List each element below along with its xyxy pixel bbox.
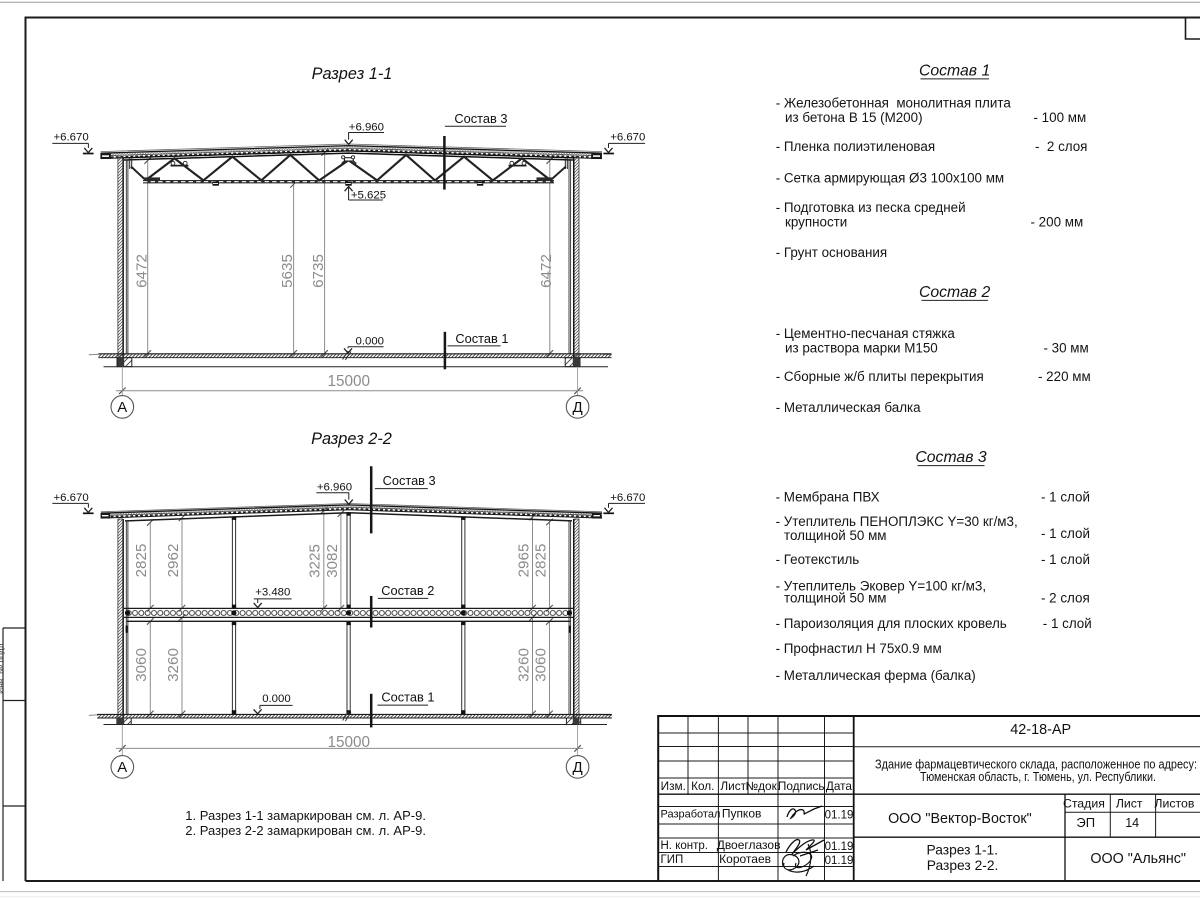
svg-text:01.19: 01.19 [825,855,854,867]
svg-text:- Геотекстиль: - Геотекстиль [776,552,860,567]
svg-text:Лист: Лист [720,779,746,793]
svg-text:- 2 слоя: - 2 слоя [1035,139,1087,154]
svg-text:0.000: 0.000 [356,336,385,348]
svg-text:крупности: крупности [785,215,847,230]
svg-text:Разрез 1-1: Разрез 1-1 [312,65,393,83]
svg-text:15000: 15000 [328,734,371,751]
svg-text:№док.: №док. [746,779,781,793]
svg-text:14: 14 [1125,816,1139,830]
svg-text:+6.960: +6.960 [317,481,352,493]
svg-text:- Металлическая ферма (балка): - Металлическая ферма (балка) [776,668,976,683]
svg-text:+6.960: +6.960 [349,121,384,133]
svg-text:- 1 слой: - 1 слой [1041,526,1090,541]
svg-text:Д: Д [573,399,583,416]
svg-text:- Пленка полиэтиленовая: - Пленка полиэтиленовая [776,139,935,154]
svg-text:Состав 2: Состав 2 [381,583,434,598]
svg-text:Разрез 2-2: Разрез 2-2 [311,430,392,448]
svg-text:из раствора марки М150: из раствора марки М150 [785,340,938,355]
svg-text:ООО "Вектор-Восток": ООО "Вектор-Восток" [888,811,1032,827]
svg-text:ООО "Альянс": ООО "Альянс" [1090,851,1186,867]
svg-text:- 2 слоя: - 2 слоя [1041,590,1090,605]
svg-text:- Пароизоляция для плоских кро: - Пароизоляция для плоских кровель [776,616,1007,631]
svg-text:- 220 мм: - 220 мм [1038,369,1091,384]
svg-text:1. Разрез 1-1 замаркирован см.: 1. Разрез 1-1 замаркирован см. л. АР-9. [185,808,426,823]
svg-text:- Железобетонная монолитная п: - Железобетонная монолитная плита [776,96,1012,111]
svg-text:ГИП: ГИП [661,854,684,866]
svg-text:Д: Д [573,759,583,776]
svg-text:- Подготовка из песка средней: - Подготовка из песка средней [776,200,966,215]
svg-text:42-18-АР: 42-18-АР [1010,722,1071,738]
svg-text:+3.480: +3.480 [255,587,290,599]
svg-text:Состав 3: Состав 3 [915,449,986,466]
svg-text:из бетона В 15 (М200): из бетона В 15 (М200) [785,110,923,125]
svg-text:15000: 15000 [328,373,371,390]
svg-text:Состав 1: Состав 1 [455,331,508,346]
svg-text:Состав 2: Состав 2 [919,284,990,301]
svg-text:- Сетка армирующая Ø3 100х100: - Сетка армирующая Ø3 100х100 мм [776,170,1004,185]
svg-text:- Металлическая балка: - Металлическая балка [776,400,921,415]
svg-text:- 30 мм: - 30 мм [1044,340,1089,355]
svg-text:- Утеплитель ПЕНОПЛЭКС Y=30 кг: - Утеплитель ПЕНОПЛЭКС Y=30 кг/м3, [776,514,1018,529]
svg-text:- 200 мм: - 200 мм [1031,215,1084,230]
svg-text:- Сборные ж/б плиты перекрытия: - Сборные ж/б плиты перекрытия [776,369,984,384]
svg-text:+6.670: +6.670 [54,492,89,504]
svg-text:ЭП: ЭП [1076,815,1095,830]
svg-text:0.000: 0.000 [262,693,291,705]
svg-text:6735: 6735 [310,254,327,288]
svg-text:+6.670: +6.670 [54,132,89,144]
svg-text:- Цементно-песчаная стяжка: - Цементно-песчаная стяжка [776,326,956,341]
svg-text:Коротаев: Коротаев [719,852,771,866]
svg-text:- Профнастил Н 75х0.9 мм: - Профнастил Н 75х0.9 мм [776,641,942,656]
svg-text:2. Разрез 2-2 замаркирован см.: 2. Разрез 2-2 замаркирован см. л. АР-9. [185,823,426,838]
svg-text:- 100 мм: - 100 мм [1034,110,1087,125]
svg-text:- Мембрана ПВХ: - Мембрана ПВХ [776,490,880,505]
svg-text:Стадия: Стадия [1063,797,1105,811]
svg-text:Разрез 1-1.: Разрез 1-1. [927,842,999,857]
svg-text:2825: 2825 [532,544,549,578]
svg-text:- Грунт основания: - Грунт основания [776,245,887,260]
svg-text:А: А [117,399,127,416]
svg-text:А: А [117,759,127,776]
svg-text:Подпись: Подпись [778,779,825,793]
svg-text:Состав 1: Состав 1 [919,63,990,80]
svg-text:2962: 2962 [165,544,182,578]
svg-text:3060: 3060 [133,648,150,682]
svg-text:толщиной 50 мм: толщиной 50 мм [784,528,887,543]
svg-text:Листов: Листов [1154,797,1194,811]
svg-text:Разработал: Разработал [661,808,721,820]
svg-text:Дата: Дата [826,779,853,793]
svg-text:толщиной 50 мм: толщиной 50 мм [784,591,887,606]
svg-text:3225: 3225 [307,544,324,578]
svg-text:+6.670: +6.670 [610,132,645,144]
svg-text:Инв. № подл.: Инв. № подл. [0,641,6,694]
svg-text:01.19: 01.19 [825,841,854,853]
svg-text:6472: 6472 [133,254,150,288]
svg-text:- 1 слой: - 1 слой [1043,616,1092,631]
svg-text:- 1 слой: - 1 слой [1041,552,1090,567]
svg-text:Состав 3: Состав 3 [383,473,436,488]
svg-text:Кол.: Кол. [691,779,714,793]
svg-text:Н. контр.: Н. контр. [661,840,708,852]
svg-text:2825: 2825 [133,544,150,578]
svg-text:Разрез 2-2.: Разрез 2-2. [927,858,999,873]
svg-text:Тюменская область, г. Тюмень,: Тюменская область, г. Тюмень, ул. Респуб… [920,769,1156,784]
svg-text:Пупков: Пупков [722,806,762,820]
svg-text:Состав 1: Состав 1 [381,690,434,705]
svg-text:Лист: Лист [1116,797,1143,811]
svg-text:Двоеглазов: Двоеглазов [717,838,781,852]
svg-text:01.19: 01.19 [825,810,854,822]
svg-text:2965: 2965 [515,544,532,578]
svg-text:+5.625: +5.625 [351,189,386,201]
svg-text:- 1 слой: - 1 слой [1041,490,1090,505]
svg-text:3082: 3082 [324,544,341,578]
svg-text:Изм.: Изм. [661,779,686,793]
svg-text:+6.670: +6.670 [610,492,645,504]
svg-text:6472: 6472 [538,254,555,288]
svg-text:5635: 5635 [279,254,296,288]
svg-text:3260: 3260 [515,648,532,682]
svg-text:Состав 3: Состав 3 [454,111,507,126]
svg-text:3260: 3260 [165,648,182,682]
svg-text:3060: 3060 [532,648,549,682]
